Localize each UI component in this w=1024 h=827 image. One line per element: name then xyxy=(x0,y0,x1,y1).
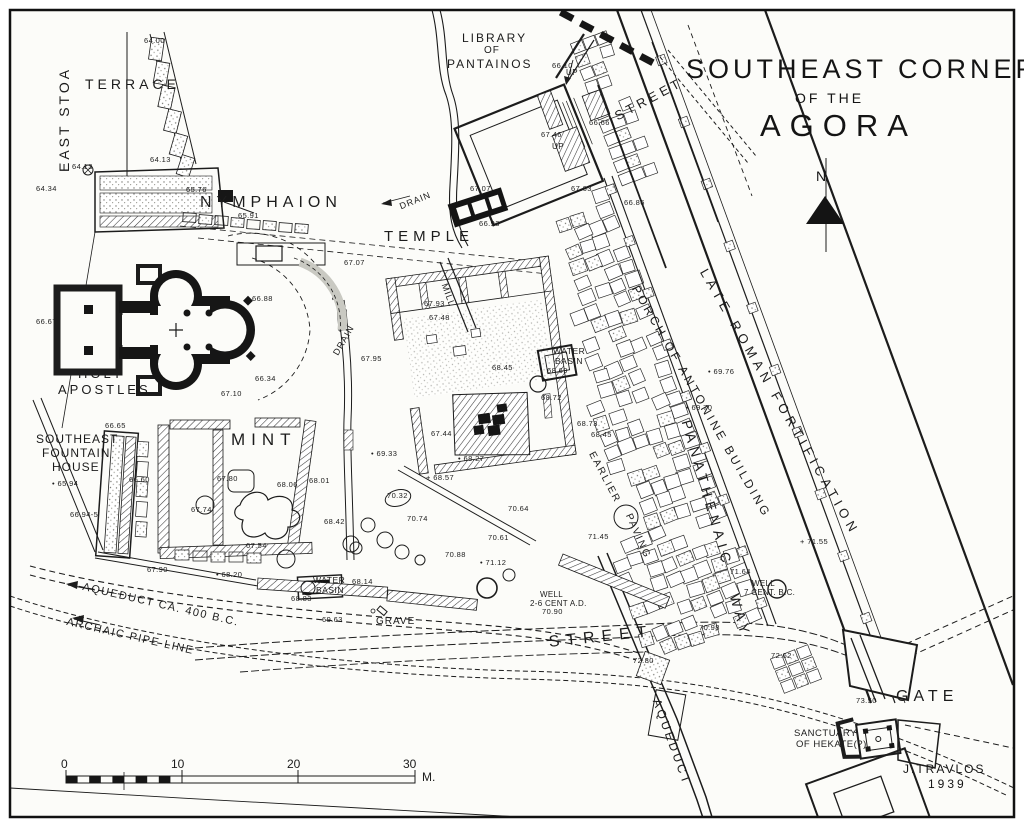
label-well: WELL xyxy=(540,590,563,599)
elevation-72-62: 72.62 xyxy=(771,651,792,660)
elevation-72-80: 72.80 xyxy=(633,656,654,665)
attribution-year: 1939 xyxy=(928,777,967,791)
elevation-66-10: 66.10 xyxy=(552,61,573,70)
label-southeast: SOUTHEAST xyxy=(36,432,118,446)
elevation-68-45: 68.45 xyxy=(591,430,612,439)
elevation-70-32: 70.32 xyxy=(387,491,408,500)
site-plan: SOUTHEAST CORNER OF THE AGORA N J.TRAVLO… xyxy=(0,0,1024,827)
label-layer: SOUTHEAST CORNER OF THE AGORA N J.TRAVLO… xyxy=(0,0,1024,827)
label-paving: PAVING xyxy=(623,512,653,561)
elevation-67-80: 67.80 xyxy=(217,474,238,483)
label-way: WAY xyxy=(727,592,755,640)
label-archaic-pipe-line: ARCHAIC PIPE LINE xyxy=(65,616,195,657)
elevation-68-45: 68.45 xyxy=(492,363,513,372)
label-of-hekate: OF HEKATE(?) xyxy=(796,739,867,750)
label-water: WATER xyxy=(313,575,345,585)
elevation-64-00: 64.00 xyxy=(144,36,165,45)
elevation-71-55: + 71.55 xyxy=(800,537,828,546)
north-letter: N xyxy=(816,168,826,184)
elevation-64-13: 64.13 xyxy=(72,162,93,171)
elevation-65-91: 65.91 xyxy=(238,211,259,220)
elevation-70-74: 70.74 xyxy=(407,514,428,523)
label-drain: DRAIN xyxy=(398,190,432,212)
scale-unit: M. xyxy=(422,770,435,784)
elevation-68-20: • 68.20 xyxy=(216,570,242,579)
elevation-66-86: 66.86 xyxy=(624,198,645,207)
label-basin: BASIN xyxy=(316,585,344,595)
label-basin: BASIN xyxy=(555,356,583,366)
label-gate: GATE xyxy=(896,688,958,706)
label-well: WELL xyxy=(752,579,775,588)
elevation-67-95: 67.95 xyxy=(361,354,382,363)
elevation-64-34: 64.34 xyxy=(36,184,57,193)
label-nymphaion: NYMPHAION xyxy=(200,194,342,212)
elevation-66-88: 66.88 xyxy=(252,294,273,303)
elevation-64-13: 64.13 xyxy=(150,155,171,164)
scale-tick-30: 30 xyxy=(403,757,416,771)
map-title-line1: SOUTHEAST CORNER xyxy=(686,54,1024,85)
label-street: STREET xyxy=(612,75,686,124)
elevation-71-12: • 71.12 xyxy=(480,558,506,567)
elevation-66-60: 66.60 xyxy=(129,475,150,484)
label-earlier: EARLIER xyxy=(586,450,622,505)
elevation-71-45: 71.45 xyxy=(588,532,609,541)
scale-tick-10: 10 xyxy=(171,757,184,771)
elevation-66-66: 66.66 xyxy=(589,118,610,127)
label-street: STREET xyxy=(548,623,654,652)
elevation-68-83: 68.83 xyxy=(291,594,312,603)
elevation-69-70: • 69.70 xyxy=(686,403,712,412)
label-7-cent-b-c: 7 CENT. B.C. xyxy=(744,588,795,597)
elevation-67-07: 67.07 xyxy=(470,184,491,193)
label-east-stoa: EAST STOA xyxy=(56,67,72,172)
label-grave: GRAVE xyxy=(376,616,415,627)
elevation-71-64: 71.64 xyxy=(730,567,751,576)
map-title-line2: OF THE xyxy=(795,90,864,106)
label-aqueduct-ca-400-b-c: AQUEDUCT CA. 400 B.C. xyxy=(81,581,240,629)
label-terrace: TERRACE xyxy=(85,76,180,92)
elevation-68-73: 68.73 xyxy=(577,419,598,428)
elevation-67-90: 67.90 xyxy=(147,565,168,574)
elevation-70-61: 70.61 xyxy=(488,533,509,542)
elevation-68-42: 68.42 xyxy=(324,517,345,526)
elevation-68-57: + 68.57 xyxy=(426,473,454,482)
elevation-69-76: • 69.76 xyxy=(708,367,734,376)
elevation-66-94-5: 66.94-5 xyxy=(70,510,98,519)
label-house: HOUSE xyxy=(52,460,100,474)
label-drain: DRAIN xyxy=(331,323,356,357)
elevation-68-01: 68.01 xyxy=(309,476,330,485)
label-late-roman-fortification: LATE ROMAN FORTIFICATION xyxy=(697,266,863,538)
label-holy: HOLY xyxy=(78,366,124,381)
label-pantainos: PANTAINOS xyxy=(447,57,533,71)
label-fountain: FOUNTAIN xyxy=(42,446,110,460)
label-mint: MINT xyxy=(231,430,297,450)
elevation-70-98: 70.98 xyxy=(699,623,720,632)
elevation-68-27: • 68.27 xyxy=(458,454,484,463)
elevation-69-63: 69.63 xyxy=(322,615,343,624)
elevation-65-94: • 65.94 xyxy=(52,479,78,488)
elevation-67-07: 67.07 xyxy=(344,258,365,267)
elevation-70-64: 70.64 xyxy=(508,504,529,513)
label-water: WATER xyxy=(553,346,585,356)
scale-tick-20: 20 xyxy=(287,757,300,771)
elevation-67-93: 67.93 xyxy=(424,299,445,308)
elevation-70-88: 70.88 xyxy=(445,550,466,559)
attribution-author: J.TRAVLOS xyxy=(903,762,985,776)
label-library: LIBRARY xyxy=(462,31,527,45)
elevation-67-10: 67.10 xyxy=(221,389,242,398)
elevation-65-76: 65.76 xyxy=(186,185,207,194)
label-of: OF xyxy=(484,45,500,56)
elevation-67-54: 67.54 xyxy=(246,541,267,550)
label-temple: TEMPLE xyxy=(384,228,474,245)
label-sanctuary: SANCTUARY xyxy=(794,728,857,739)
elevation-73-50: 73.50 xyxy=(856,696,877,705)
elevation-66-93: 66.93 xyxy=(479,219,500,228)
elevation-67-44: 67.44 xyxy=(431,429,452,438)
label-aqueduct: AQUEDUCT xyxy=(650,697,694,788)
map-title-line3: AGORA xyxy=(760,108,917,144)
elevation-69-33: • 69.33 xyxy=(371,449,397,458)
elevation-67-48: 67.48 xyxy=(429,313,450,322)
elevation-66-65: 66.65 xyxy=(105,421,126,430)
label-apostles: APOSTLES xyxy=(58,382,151,397)
elevation-68-14: 68.14 xyxy=(352,577,373,586)
elevation-67-74: 67.74 xyxy=(191,505,212,514)
elevation-67-63: 67.63 xyxy=(571,184,592,193)
scale-tick-0: 0 xyxy=(61,757,68,771)
elevation-70-90: 70.90 xyxy=(542,607,563,616)
elevation-68-06: 68.06 xyxy=(277,480,298,489)
elevation-67-46: 67.46 xyxy=(541,130,562,139)
label-up: UP xyxy=(552,142,564,151)
elevation-68-69: 68.69 xyxy=(547,366,568,375)
elevation-66-34: 66.34 xyxy=(255,374,276,383)
elevation-66-67: 66.67 xyxy=(36,317,57,326)
elevation-68-72: 68.72 xyxy=(541,393,562,402)
